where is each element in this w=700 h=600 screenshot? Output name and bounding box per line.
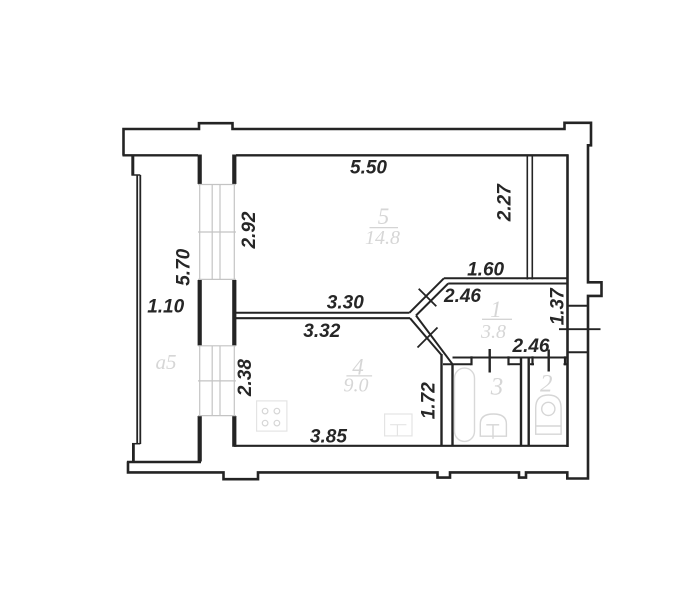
svg-text:2.38: 2.38 xyxy=(235,359,256,397)
svg-text:3.30: 3.30 xyxy=(327,292,364,313)
svg-text:2.46: 2.46 xyxy=(512,336,550,357)
svg-text:3.8: 3.8 xyxy=(480,321,506,343)
svg-text:9.0: 9.0 xyxy=(344,375,369,397)
svg-text:5.70: 5.70 xyxy=(174,248,195,285)
svg-text:1: 1 xyxy=(490,297,502,322)
svg-text:2.92: 2.92 xyxy=(239,211,260,249)
svg-text:a5: a5 xyxy=(156,350,177,374)
svg-text:5: 5 xyxy=(378,204,390,229)
svg-text:2.27: 2.27 xyxy=(495,183,516,222)
svg-text:3.85: 3.85 xyxy=(310,427,347,448)
svg-text:2: 2 xyxy=(540,371,553,398)
svg-text:1.60: 1.60 xyxy=(467,260,504,281)
svg-text:14.8: 14.8 xyxy=(365,227,400,249)
svg-text:1.10: 1.10 xyxy=(147,297,184,318)
svg-text:1.37: 1.37 xyxy=(548,287,569,325)
svg-text:3.32: 3.32 xyxy=(303,321,340,342)
svg-text:5.50: 5.50 xyxy=(350,158,387,179)
svg-text:1.72: 1.72 xyxy=(419,382,440,419)
svg-text:2.46: 2.46 xyxy=(443,286,481,307)
svg-text:3: 3 xyxy=(490,374,504,401)
